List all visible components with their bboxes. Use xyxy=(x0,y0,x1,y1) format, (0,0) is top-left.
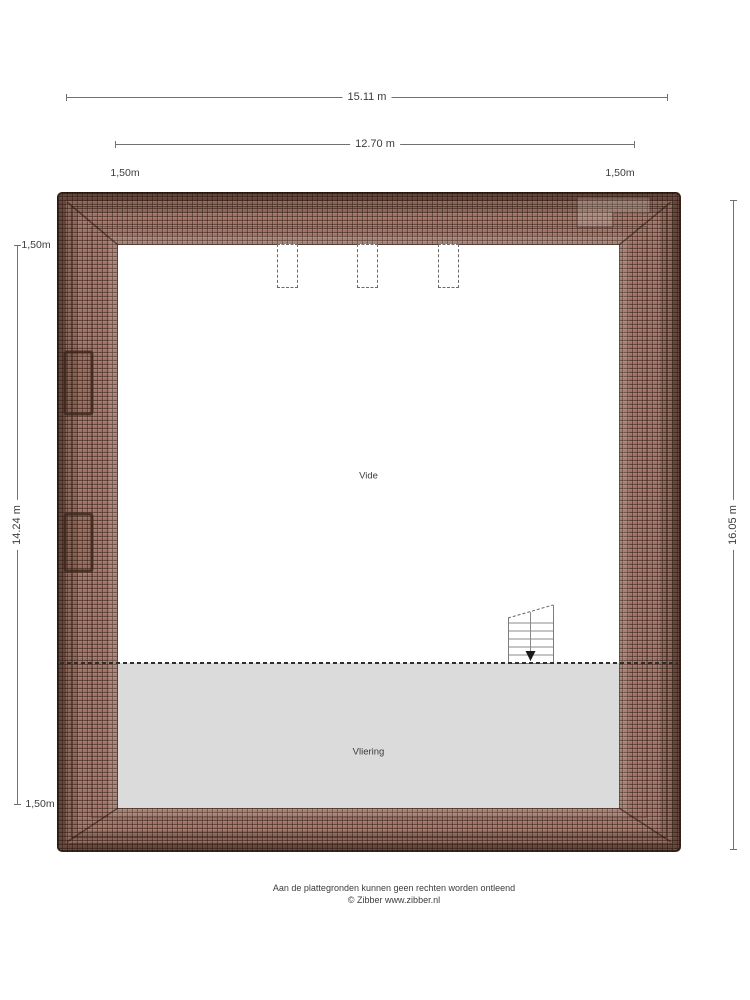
attic-interior: Vide Vliering xyxy=(118,245,619,808)
dimension-left-bottom-eave: 1,50m xyxy=(25,798,54,810)
skylight-icon xyxy=(357,244,378,288)
skylight-icon xyxy=(438,244,459,288)
vliering-area xyxy=(118,663,619,808)
room-label-vide: Vide xyxy=(359,471,378,482)
hip-line xyxy=(67,202,118,245)
roof-window-icon xyxy=(65,352,92,414)
footer-copyright: © Zibber www.zibber.nl xyxy=(273,894,515,906)
footer: Aan de plattegronden kunnen geen rechten… xyxy=(273,882,515,906)
roof-plan: Vide Vliering xyxy=(57,192,681,852)
hip-line xyxy=(619,808,671,842)
footer-disclaimer: Aan de plattegronden kunnen geen rechten… xyxy=(273,882,515,894)
dimension-label: 12.70 m xyxy=(350,138,400,150)
hip-line xyxy=(67,808,118,842)
dimension-left-inner-height: 14.24 m xyxy=(17,245,18,805)
dimension-label: 15.11 m xyxy=(343,91,392,103)
hip-line xyxy=(619,202,671,245)
skylight-icon xyxy=(277,244,298,288)
dimension-top-inner-width: 12.70 m xyxy=(115,144,635,145)
dimension-top-right-eave: 1,50m xyxy=(605,167,634,179)
stairs-down-icon xyxy=(508,604,554,664)
roof-flat-section xyxy=(577,197,650,227)
dimension-label: 16.05 m xyxy=(727,500,739,550)
dimension-top-left-eave: 1,50m xyxy=(110,167,139,179)
dimension-right-outer-height: 16.05 m xyxy=(733,200,734,850)
dimension-label: 14.24 m xyxy=(11,500,23,550)
roof-window-icon xyxy=(65,514,92,571)
room-label-vliering: Vliering xyxy=(353,747,385,758)
dimension-left-top-eave: 1,50m xyxy=(21,239,50,251)
dimension-top-outer-width: 15.11 m xyxy=(66,97,668,98)
vliering-boundary-dashed-line xyxy=(60,662,678,664)
